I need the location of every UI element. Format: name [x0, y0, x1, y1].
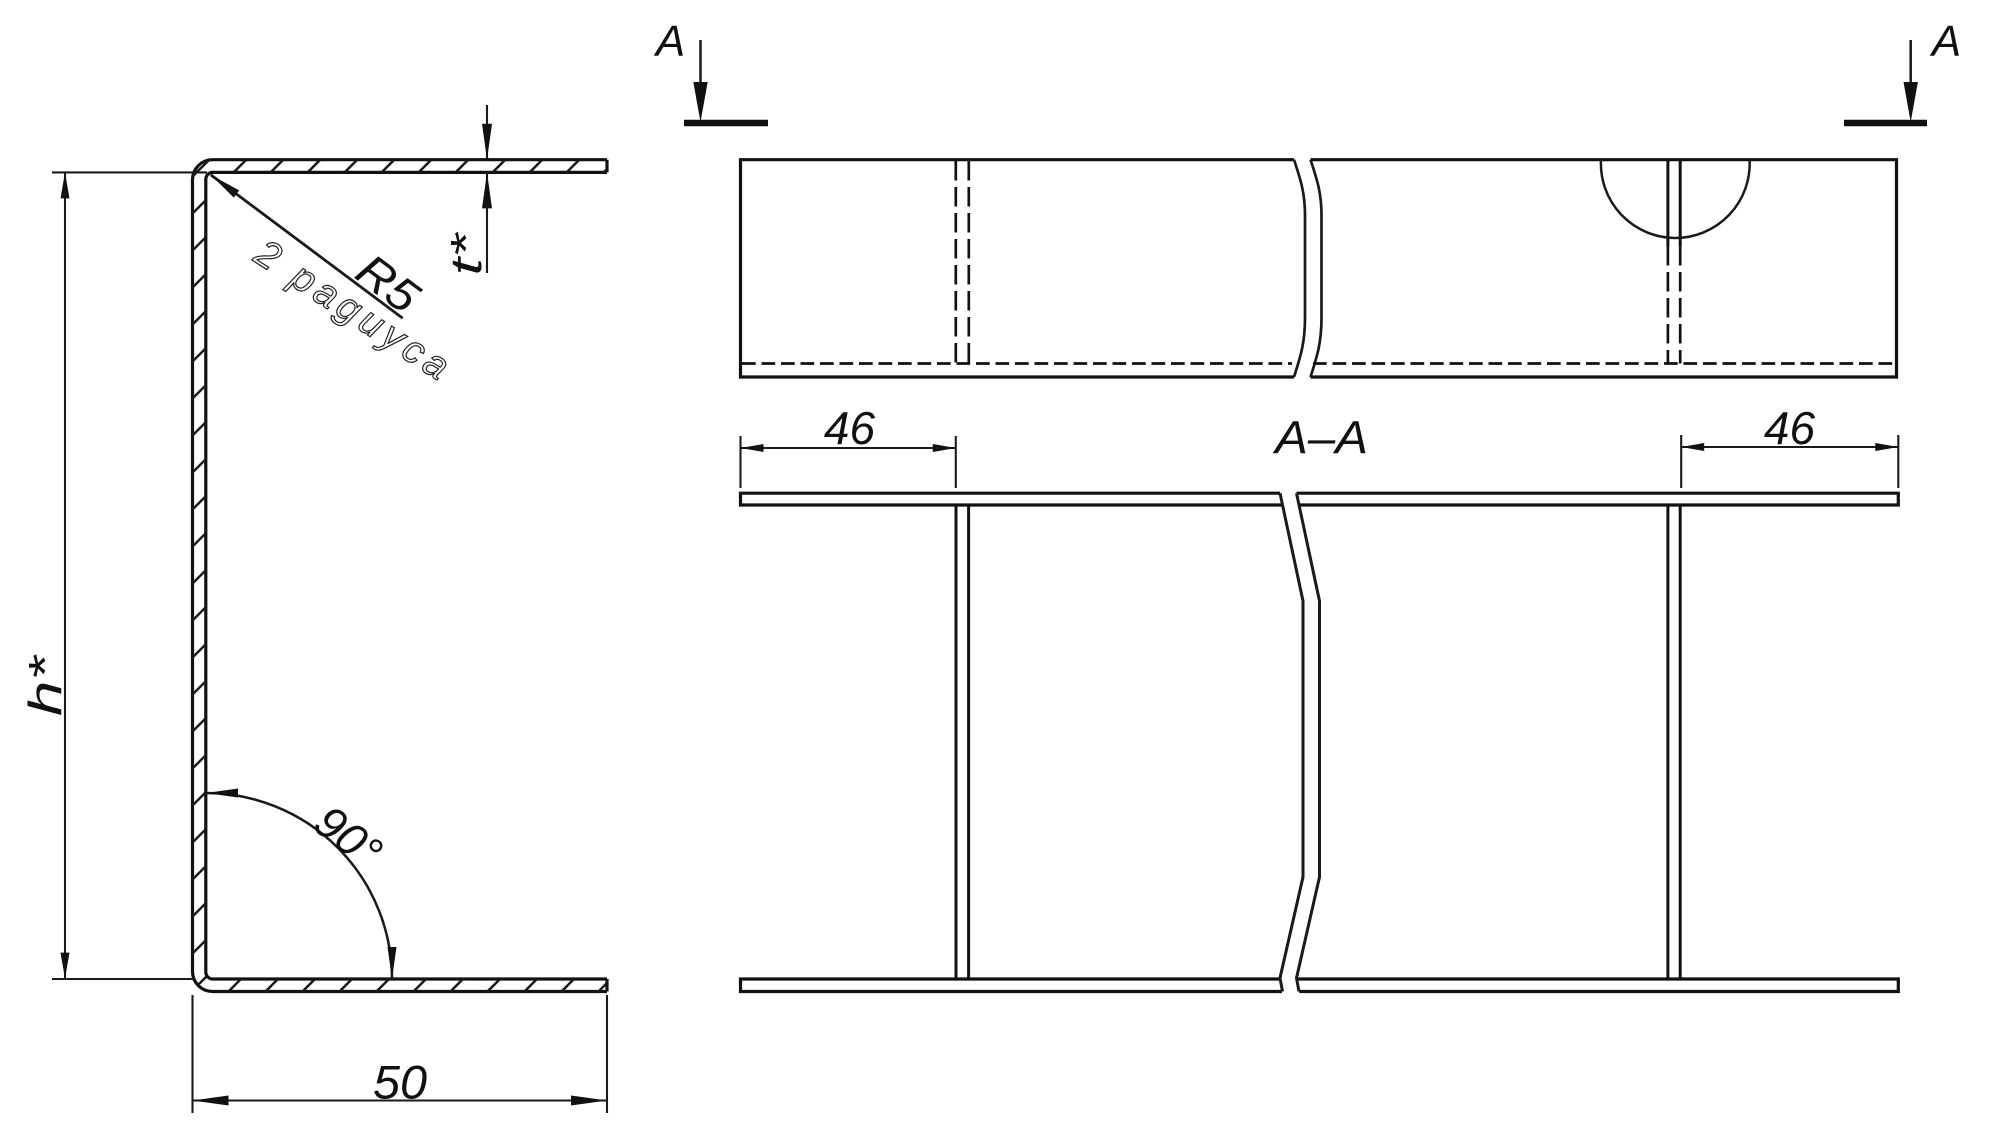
svg-text:A–A: A–A [1272, 412, 1368, 464]
svg-text:A: A [653, 17, 685, 66]
svg-text:h*: h* [19, 653, 71, 716]
svg-text:t*: t* [442, 231, 491, 276]
svg-text:50: 50 [373, 1056, 427, 1109]
svg-text:46: 46 [824, 402, 876, 454]
svg-text:90°: 90° [305, 795, 392, 879]
svg-text:2 paguyca: 2 paguyca [246, 231, 456, 389]
svg-text:A: A [1929, 17, 1961, 66]
svg-text:46: 46 [1764, 402, 1816, 454]
